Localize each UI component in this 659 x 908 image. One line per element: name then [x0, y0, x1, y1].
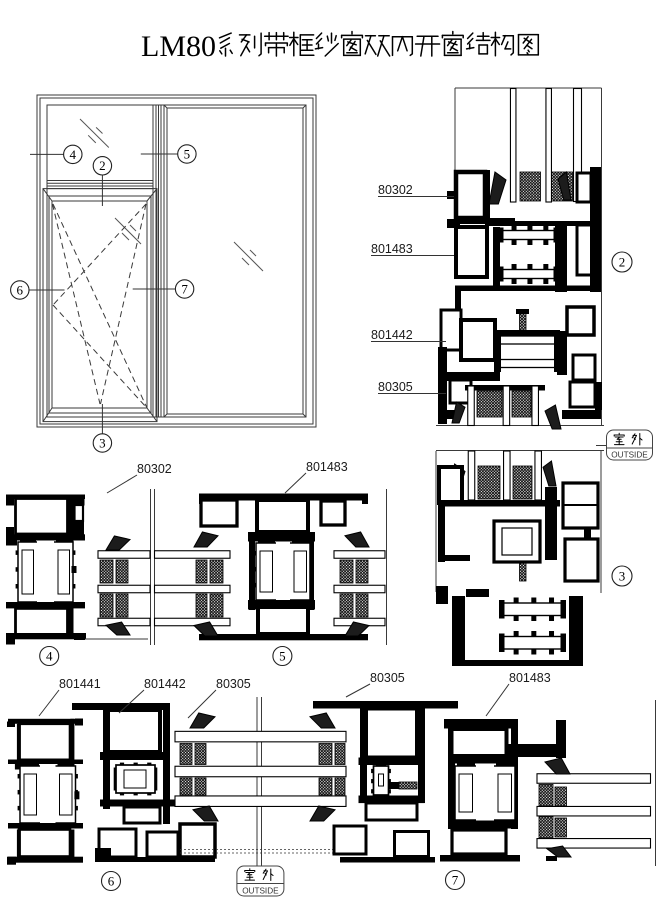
svg-text:3: 3	[99, 435, 106, 450]
svg-text:80305: 80305	[216, 677, 251, 691]
svg-text:LM80: LM80	[141, 30, 216, 63]
svg-text:OUTSIDE: OUTSIDE	[242, 887, 279, 896]
svg-text:801442: 801442	[144, 677, 186, 691]
svg-text:801483: 801483	[306, 460, 348, 474]
svg-text:801483: 801483	[371, 242, 413, 256]
svg-text:5: 5	[279, 648, 286, 663]
svg-text:OUTSIDE: OUTSIDE	[611, 451, 648, 460]
svg-text:4: 4	[46, 648, 53, 663]
svg-text:80302: 80302	[378, 183, 413, 197]
svg-text:801483: 801483	[509, 671, 551, 685]
svg-text:7: 7	[181, 281, 188, 296]
svg-text:801442: 801442	[371, 328, 413, 342]
svg-text:80305: 80305	[378, 380, 413, 394]
svg-text:80305: 80305	[370, 671, 405, 685]
svg-text:5: 5	[184, 146, 191, 161]
svg-text:801441: 801441	[59, 677, 101, 691]
svg-text:6: 6	[108, 873, 115, 888]
svg-text:6: 6	[17, 282, 24, 297]
svg-text:4: 4	[70, 147, 77, 162]
svg-text:80302: 80302	[137, 462, 172, 476]
svg-text:3: 3	[619, 568, 626, 583]
svg-text:2: 2	[619, 254, 626, 269]
svg-text:7: 7	[452, 872, 459, 887]
svg-text:2: 2	[99, 158, 106, 173]
